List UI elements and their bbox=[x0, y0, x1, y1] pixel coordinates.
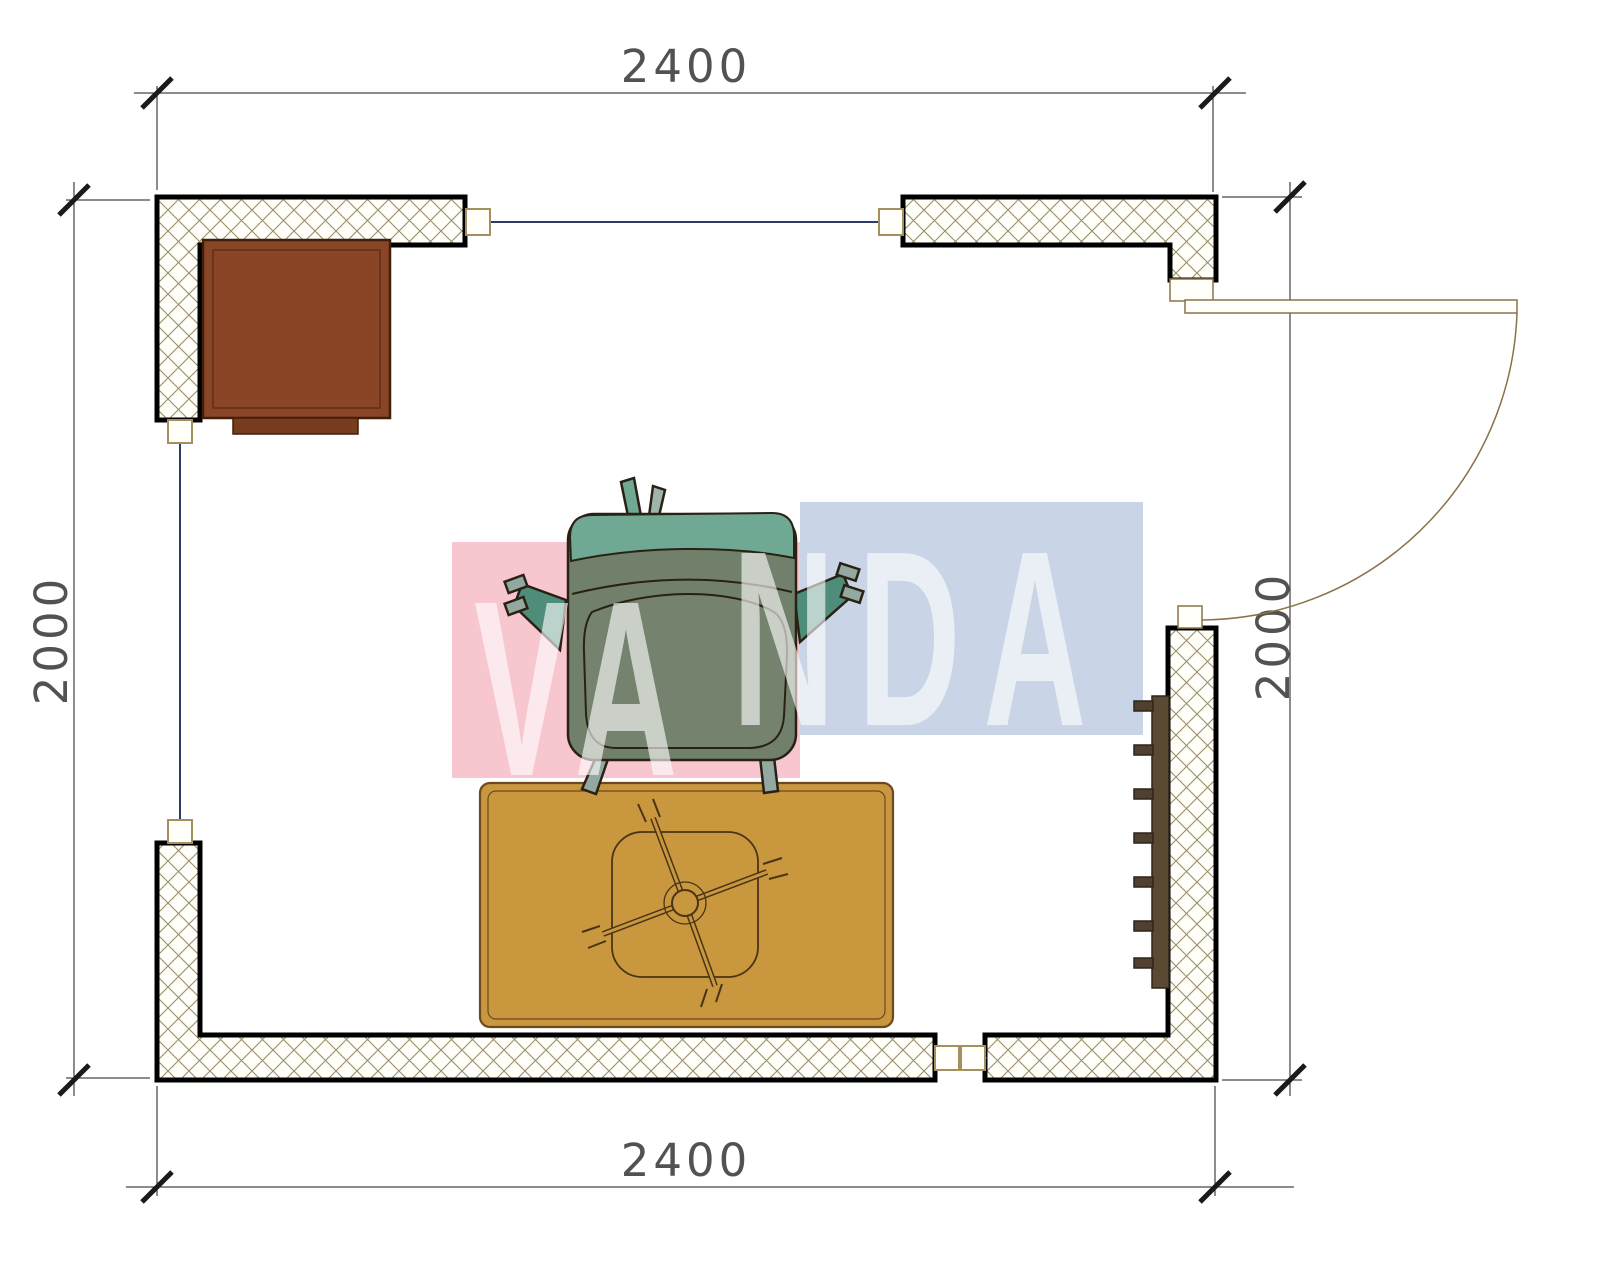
dimension-label-right: 2000 bbox=[1247, 571, 1300, 702]
radiator-fin bbox=[1134, 701, 1153, 711]
dimension-label-top: 2400 bbox=[621, 40, 752, 93]
wall-post bbox=[466, 209, 490, 235]
door-leaf bbox=[1185, 300, 1517, 313]
table-hub bbox=[672, 890, 698, 916]
radiator-fin bbox=[1134, 877, 1153, 887]
wall-post bbox=[168, 420, 192, 443]
dimension-top: 2400 bbox=[134, 40, 1246, 192]
wall-post bbox=[961, 1046, 985, 1070]
door-hinge-post bbox=[1170, 279, 1213, 301]
chair-leg bbox=[621, 478, 641, 516]
radiator-fin bbox=[1134, 958, 1153, 968]
cabinet bbox=[203, 240, 390, 434]
dimension-right: 2000 bbox=[1222, 182, 1305, 1096]
watermark-text-nda: NDA bbox=[732, 514, 1109, 764]
cabinet-base-tab bbox=[233, 418, 358, 434]
wall-post bbox=[168, 820, 192, 843]
dimension-bottom: 2400 bbox=[126, 1086, 1294, 1202]
watermark-text-va: VA bbox=[474, 564, 693, 814]
wall-post bbox=[879, 209, 903, 235]
dimension-label-bottom: 2400 bbox=[621, 1134, 752, 1187]
wall-top-right bbox=[903, 197, 1216, 280]
door bbox=[1170, 279, 1517, 628]
radiator-fin bbox=[1134, 789, 1153, 799]
door-strike-post bbox=[1178, 606, 1202, 628]
chair-leg bbox=[649, 486, 665, 516]
radiator bbox=[1134, 696, 1169, 988]
radiator-fin bbox=[1134, 745, 1153, 755]
radiator-fin bbox=[1134, 921, 1153, 931]
dimension-label-left: 2000 bbox=[25, 575, 78, 706]
radiator-fin bbox=[1134, 833, 1153, 843]
dimension-left: 2000 bbox=[25, 182, 150, 1096]
floor-plan-page: 2400 2400 2000 2000 bbox=[0, 0, 1600, 1280]
wall-post bbox=[935, 1046, 959, 1070]
